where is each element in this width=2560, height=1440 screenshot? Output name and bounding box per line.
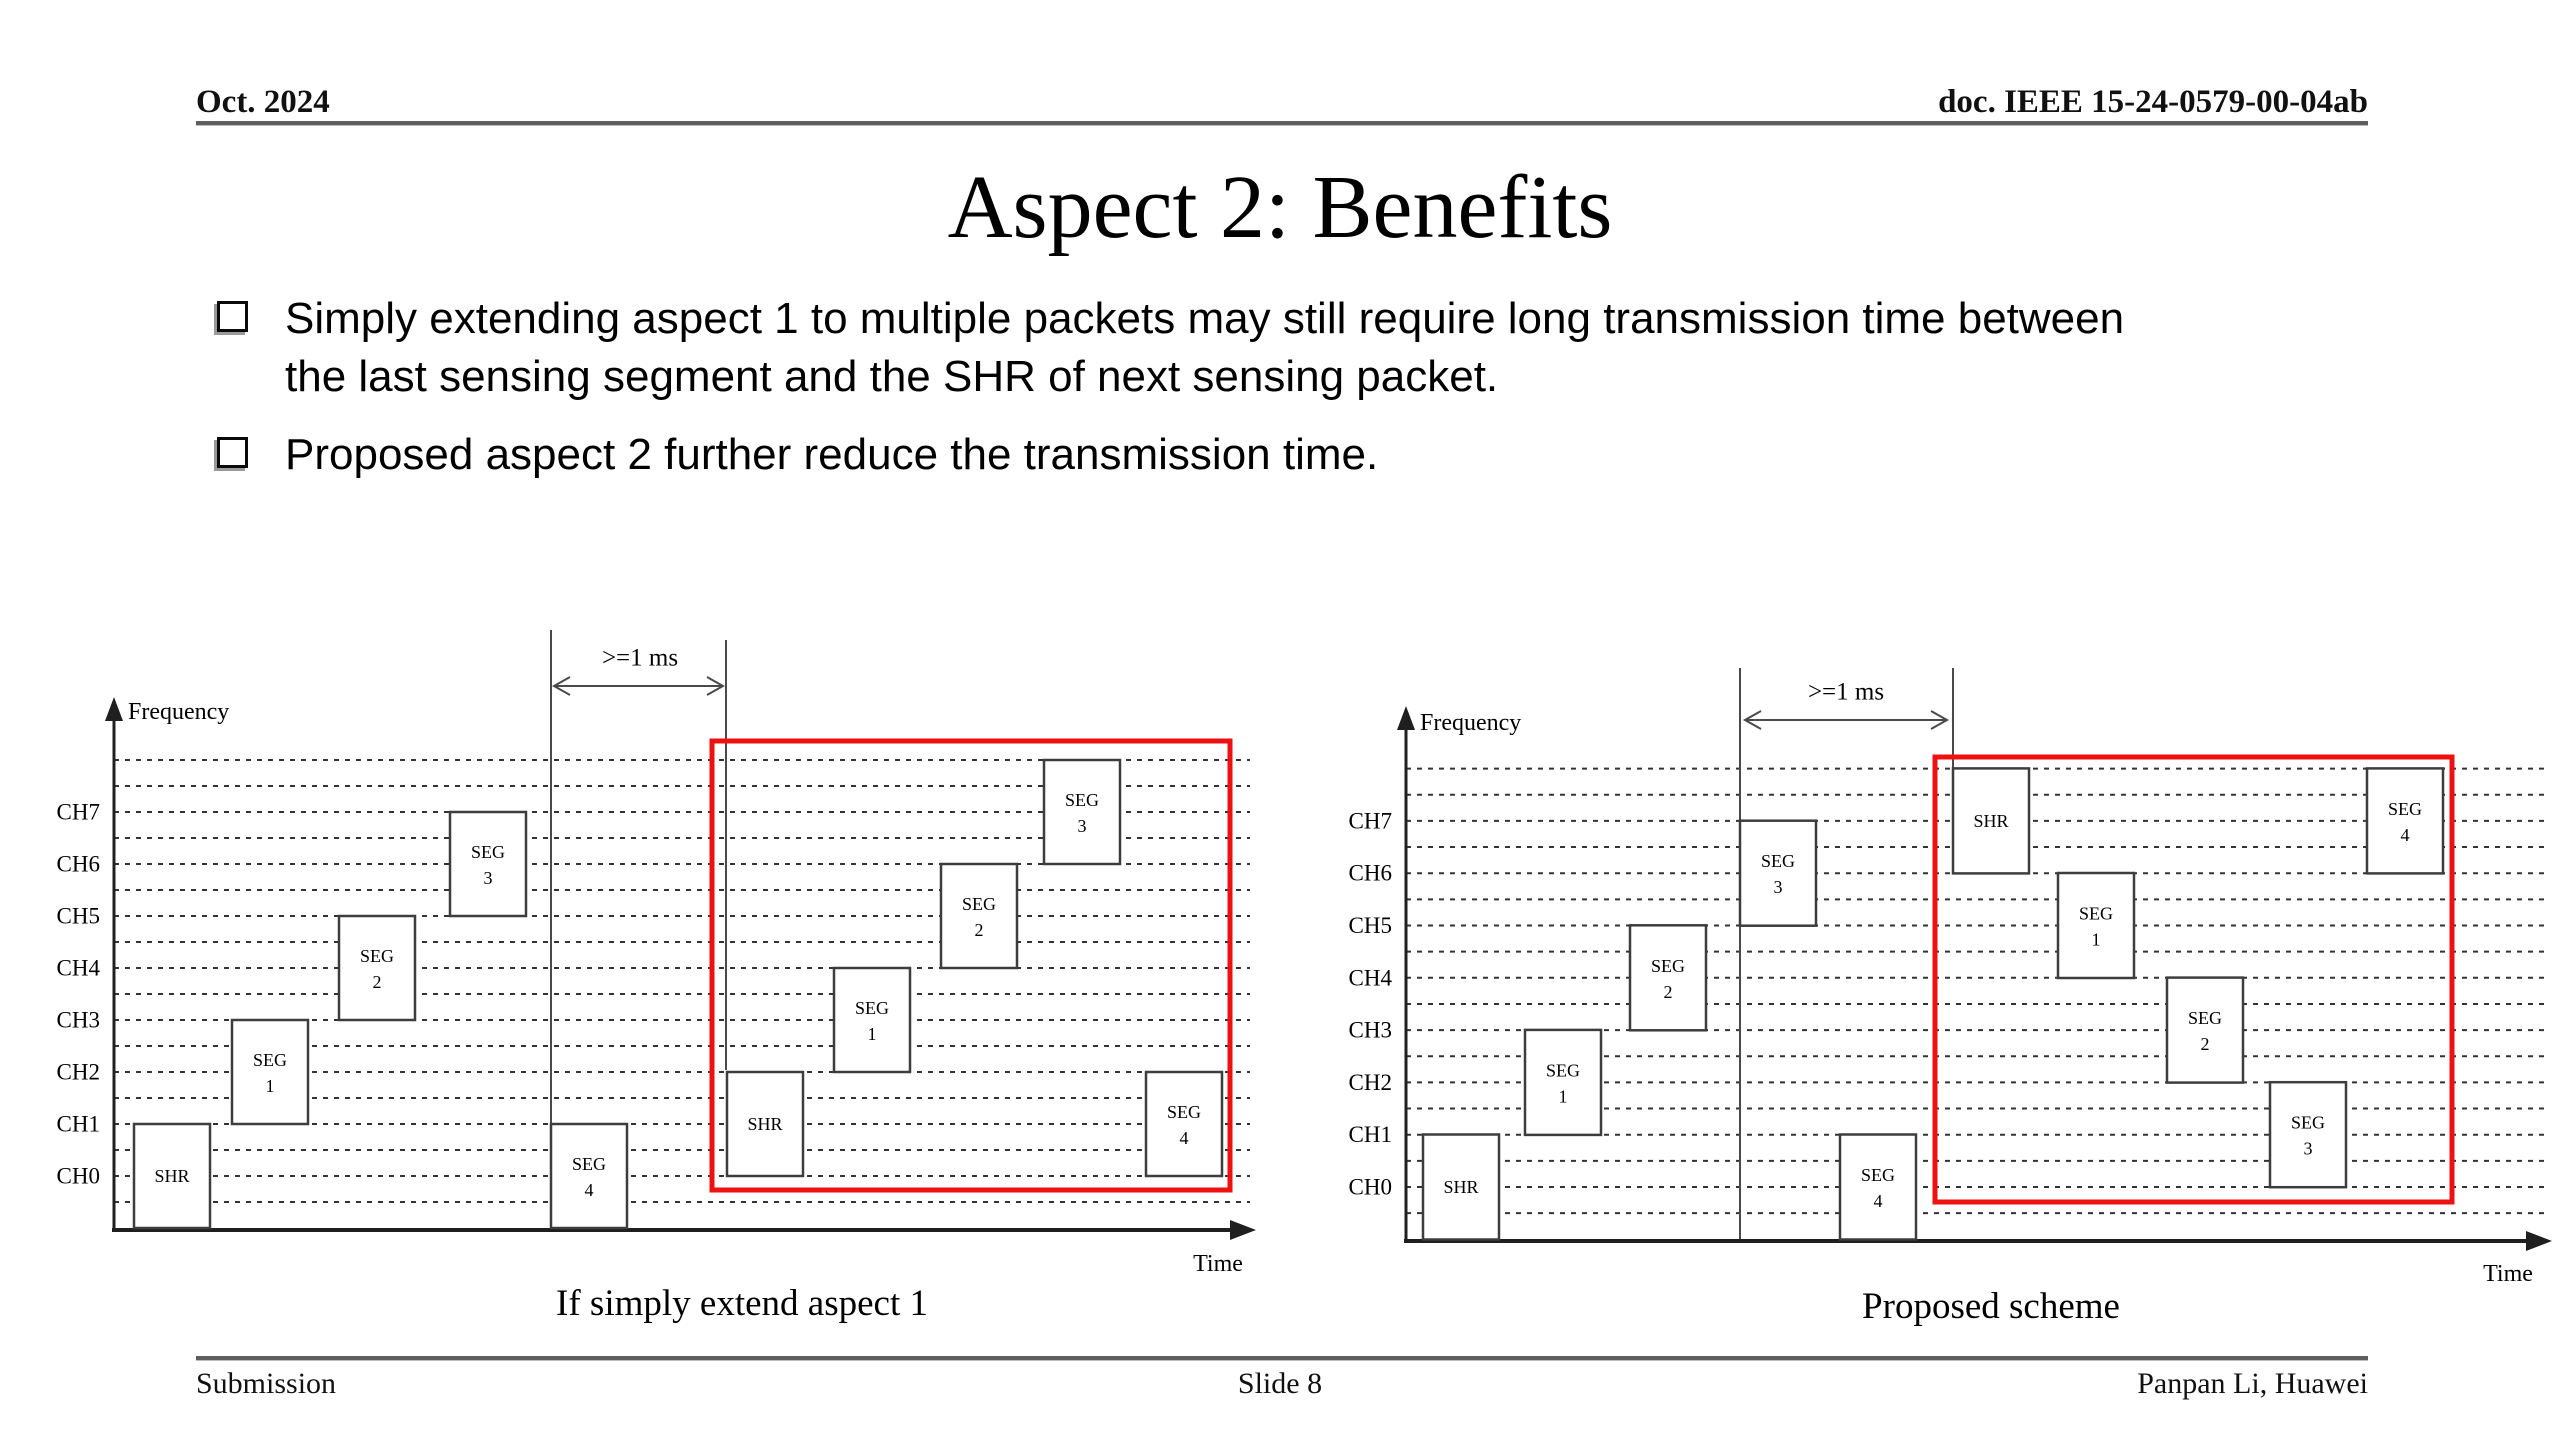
channel-label-ch1: CH1 xyxy=(1349,1122,1392,1147)
packet-box-rect xyxy=(232,1020,308,1124)
channel-label-ch5: CH5 xyxy=(57,904,100,929)
packet-box-rect xyxy=(1146,1072,1222,1176)
packet-box-label: SEG xyxy=(962,894,996,914)
packet-box-sub-label: 2 xyxy=(1664,982,1673,1002)
seg-2-box: SEG2 xyxy=(1630,925,1706,1030)
packet-box-label: SEG xyxy=(1861,1165,1895,1185)
frequency-axis-arrow-icon xyxy=(1397,706,1415,730)
packet-box-rect xyxy=(1840,1135,1916,1240)
channel-label-ch4: CH4 xyxy=(57,956,101,981)
seg-3-box: SEG3 xyxy=(1740,821,1816,926)
channel-label-ch2: CH2 xyxy=(1349,1070,1392,1095)
seg-2-box: SEG2 xyxy=(339,916,415,1020)
shr-box: SHR xyxy=(134,1124,210,1228)
packet-box-rect xyxy=(1525,1030,1601,1135)
channel-label-ch3: CH3 xyxy=(57,1008,100,1033)
packet-box-sub-label: 2 xyxy=(975,920,984,940)
channel-label-ch6: CH6 xyxy=(1349,861,1392,886)
packet-box-sub-label: 1 xyxy=(868,1024,877,1044)
channel-label-ch6: CH6 xyxy=(57,852,100,877)
shr-box: SHR xyxy=(1423,1135,1499,1240)
packet-box-label: SEG xyxy=(360,946,394,966)
seg-2-box: SEG2 xyxy=(2167,978,2243,1083)
packet-box-label: SEG xyxy=(572,1154,606,1174)
right-diagram-caption: Proposed scheme xyxy=(1862,1285,2120,1329)
packet-box-sub-label: 2 xyxy=(2201,1034,2210,1054)
time-axis-arrow-icon xyxy=(2526,1231,2552,1251)
left-diagram: FrequencyTimeCH0CH1CH2CH3CH4CH5CH6CH7>=1… xyxy=(57,630,1256,1277)
delay-label: >=1 ms xyxy=(602,645,678,672)
shr-box: SHR xyxy=(1953,768,2029,873)
packet-box-label: SEG xyxy=(1651,956,1685,976)
packet-box-label: SEG xyxy=(2388,799,2422,819)
right-diagram: FrequencyTimeCH0CH1CH2CH3CH4CH5CH6CH7>=1… xyxy=(1349,668,2552,1287)
frequency-axis-label: Frequency xyxy=(1420,710,1521,736)
shr-box: SHR xyxy=(727,1072,803,1176)
packet-box-sub-label: 1 xyxy=(1559,1086,1568,1106)
time-axis-arrow-icon xyxy=(1230,1220,1256,1240)
footer-author: Panpan Li, Huawei xyxy=(2137,1366,2368,1402)
diagrams-canvas: FrequencyTimeCH0CH1CH2CH3CH4CH5CH6CH7>=1… xyxy=(0,0,2560,1440)
seg-1-box: SEG1 xyxy=(1525,1030,1601,1135)
delay-annotation: >=1 ms xyxy=(554,645,723,696)
packet-box-rect xyxy=(339,916,415,1020)
packet-box-label: SHR xyxy=(1443,1177,1478,1197)
channel-label-ch5: CH5 xyxy=(1349,913,1392,938)
packet-box-sub-label: 4 xyxy=(585,1180,594,1200)
seg-2-box: SEG2 xyxy=(941,864,1017,968)
packet-box-rect xyxy=(1044,760,1120,864)
seg-1-box: SEG1 xyxy=(2058,873,2134,978)
packet-box-sub-label: 3 xyxy=(1078,816,1087,836)
packet-box-sub-label: 1 xyxy=(266,1076,275,1096)
channel-label-ch0: CH0 xyxy=(1349,1175,1392,1200)
packet-box-rect xyxy=(551,1124,627,1228)
packet-box-label: SEG xyxy=(471,842,505,862)
time-axis-label: Time xyxy=(2483,1261,2533,1287)
footer-rule xyxy=(196,1356,2368,1361)
packet-box-label: SEG xyxy=(2079,904,2113,924)
packet-box-sub-label: 3 xyxy=(2304,1139,2313,1159)
packet-box-rect xyxy=(2367,768,2443,873)
packet-box-label: SEG xyxy=(1065,790,1099,810)
time-axis-label: Time xyxy=(1193,1251,1243,1277)
seg-1-box: SEG1 xyxy=(834,968,910,1072)
packet-box-rect xyxy=(834,968,910,1072)
channel-label-ch0: CH0 xyxy=(57,1164,100,1189)
channel-label-ch3: CH3 xyxy=(1349,1018,1392,1043)
frequency-axis-label: Frequency xyxy=(128,699,229,725)
packet-box-label: SEG xyxy=(1761,851,1795,871)
seg-3-box: SEG3 xyxy=(450,812,526,916)
packet-box-label: SEG xyxy=(1546,1060,1580,1080)
channel-label-ch4: CH4 xyxy=(1349,965,1393,990)
seg-4-box: SEG4 xyxy=(1146,1072,1222,1176)
delay-label: >=1 ms xyxy=(1808,679,1884,706)
seg-3-box: SEG3 xyxy=(1044,760,1120,864)
frequency-axis-arrow-icon xyxy=(105,697,123,721)
seg-1-box: SEG1 xyxy=(232,1020,308,1124)
packet-box-label: SHR xyxy=(154,1166,189,1186)
packet-box-sub-label: 3 xyxy=(484,868,493,888)
packet-box-rect xyxy=(941,864,1017,968)
packet-box-label: SEG xyxy=(253,1050,287,1070)
packet-box-sub-label: 4 xyxy=(1874,1191,1883,1211)
packet-box-label: SEG xyxy=(1167,1102,1201,1122)
packet-box-sub-label: 4 xyxy=(2401,825,2410,845)
left-diagram-caption: If simply extend aspect 1 xyxy=(556,1282,928,1326)
channel-label-ch7: CH7 xyxy=(57,800,100,825)
packet-box-rect xyxy=(2167,978,2243,1083)
seg-4-box: SEG4 xyxy=(2367,768,2443,873)
packet-box-sub-label: 2 xyxy=(373,972,382,992)
packet-box-label: SHR xyxy=(1973,811,2008,831)
seg-3-box: SEG3 xyxy=(2270,1082,2346,1187)
packet-box-label: SEG xyxy=(2291,1113,2325,1133)
packet-box-rect xyxy=(1740,821,1816,926)
packet-box-rect xyxy=(1630,925,1706,1030)
slide: Oct. 2024 doc. IEEE 15-24-0579-00-04ab A… xyxy=(0,0,2560,1440)
channel-label-ch2: CH2 xyxy=(57,1060,100,1085)
seg-4-box: SEG4 xyxy=(551,1124,627,1228)
channel-label-ch1: CH1 xyxy=(57,1112,100,1137)
packet-box-sub-label: 4 xyxy=(1180,1128,1189,1148)
packet-box-label: SEG xyxy=(2188,1008,2222,1028)
packet-box-label: SEG xyxy=(855,998,889,1018)
packet-box-label: SHR xyxy=(747,1114,782,1134)
packet-box-sub-label: 1 xyxy=(2092,930,2101,950)
delay-annotation: >=1 ms xyxy=(1745,679,1947,730)
seg-4-box: SEG4 xyxy=(1840,1135,1916,1240)
channel-label-ch7: CH7 xyxy=(1349,808,1392,833)
packet-box-sub-label: 3 xyxy=(1774,877,1783,897)
packet-box-rect xyxy=(450,812,526,916)
packet-box-rect xyxy=(2270,1082,2346,1187)
packet-box-rect xyxy=(2058,873,2134,978)
